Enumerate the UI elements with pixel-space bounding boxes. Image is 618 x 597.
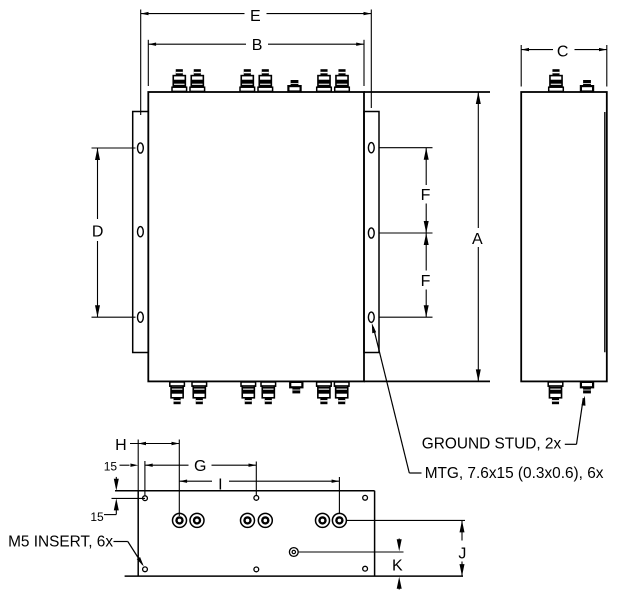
svg-text:C: C xyxy=(557,44,569,61)
svg-text:M5 INSERT, 6x: M5 INSERT, 6x xyxy=(8,533,113,550)
svg-text:F: F xyxy=(421,187,431,204)
svg-text:F: F xyxy=(421,273,431,290)
svg-text:GROUND STUD, 2x: GROUND STUD, 2x xyxy=(422,435,562,452)
svg-text:G: G xyxy=(194,458,206,475)
svg-text:B: B xyxy=(252,37,263,54)
svg-text:MTG, 7.6x15 (0.3x0.6), 6x: MTG, 7.6x15 (0.3x0.6), 6x xyxy=(425,465,604,482)
svg-text:H: H xyxy=(115,437,127,454)
svg-text:E: E xyxy=(250,8,261,25)
svg-text:15: 15 xyxy=(104,460,118,474)
svg-text:D: D xyxy=(92,224,104,241)
svg-text:I: I xyxy=(218,476,222,493)
svg-text:K: K xyxy=(392,558,403,575)
svg-text:15: 15 xyxy=(90,510,104,524)
svg-text:J: J xyxy=(458,545,466,562)
svg-text:A: A xyxy=(472,231,483,248)
